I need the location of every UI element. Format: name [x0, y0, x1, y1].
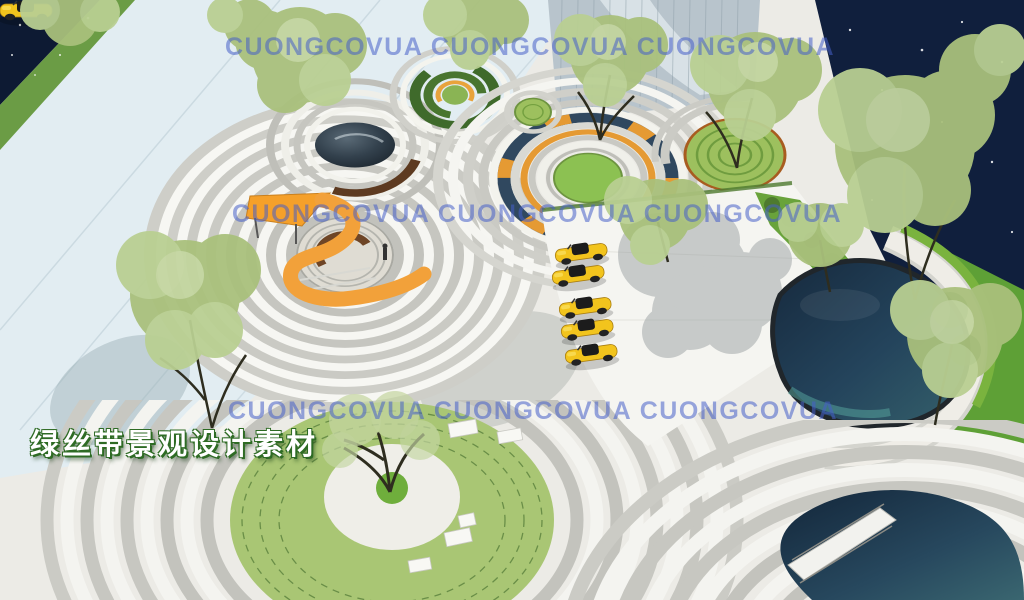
small-garden-circle: [507, 93, 559, 132]
render-graphics: [0, 0, 1024, 600]
person-figure: [383, 244, 388, 261]
landscape-render: CUONGCOVUA CUONGCOVUA CUONGCOVUA CUONGCO…: [0, 0, 1024, 600]
